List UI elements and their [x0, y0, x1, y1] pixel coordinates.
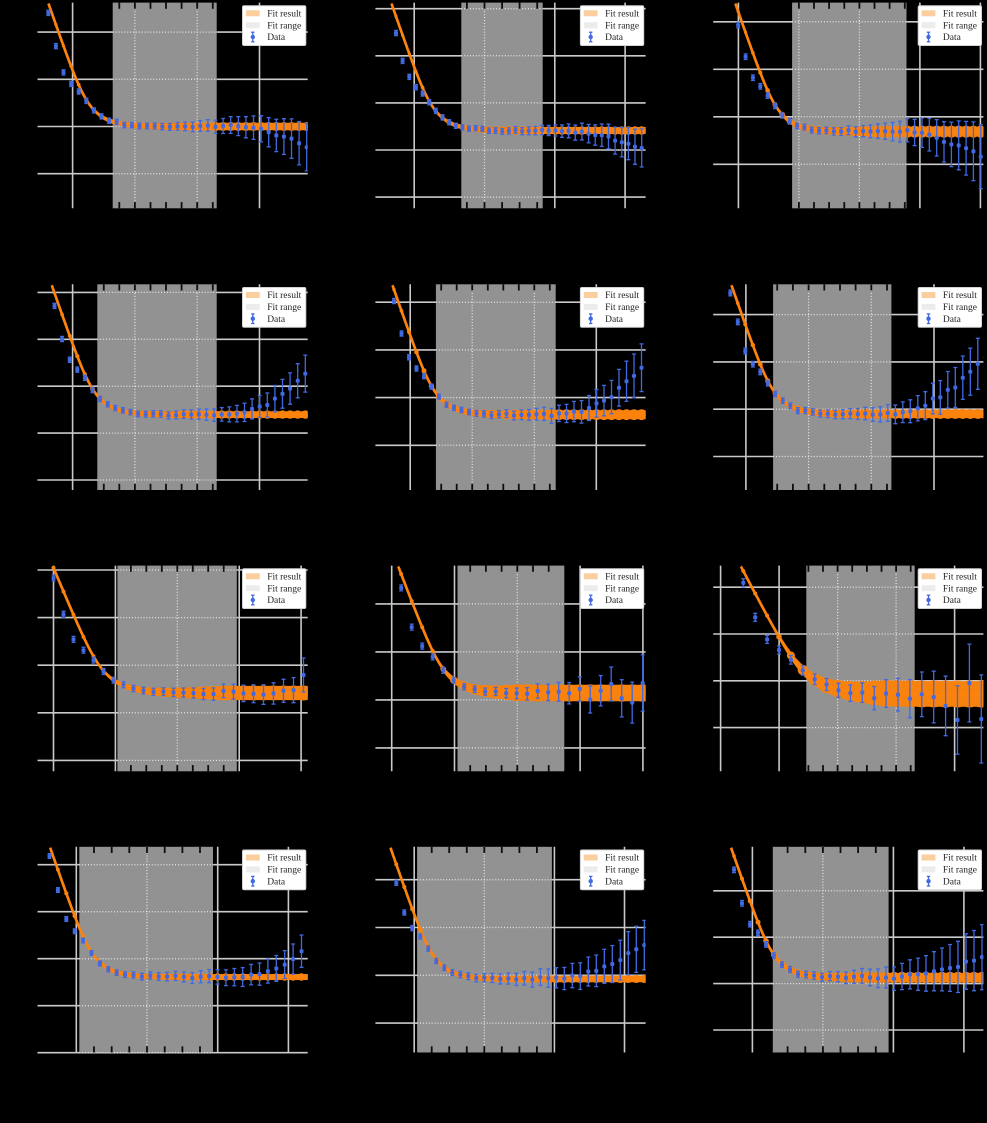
svg-text:Data: Data [267, 877, 286, 887]
svg-text:Fit range: Fit range [267, 584, 301, 594]
svg-text:Fit result: Fit result [605, 573, 639, 583]
svg-text:Data: Data [605, 33, 624, 43]
svg-text:Fit range: Fit range [943, 303, 977, 313]
svg-text:Fit result: Fit result [943, 854, 977, 864]
svg-text:Fit range: Fit range [267, 21, 301, 31]
svg-text:Data: Data [605, 315, 624, 325]
svg-text:Data: Data [943, 877, 962, 887]
svg-text:Fit range: Fit range [605, 866, 639, 876]
svg-text:Data: Data [605, 596, 624, 606]
svg-text:Data: Data [605, 877, 624, 887]
svg-text:Fit range: Fit range [267, 303, 301, 313]
svg-text:Fit range: Fit range [943, 21, 977, 31]
svg-text:Fit result: Fit result [943, 10, 977, 20]
svg-text:Data: Data [943, 315, 962, 325]
svg-text:Fit result: Fit result [943, 291, 977, 301]
svg-text:Data: Data [943, 33, 962, 43]
svg-text:Fit range: Fit range [605, 584, 639, 594]
svg-text:Fit range: Fit range [605, 21, 639, 31]
svg-text:Fit result: Fit result [605, 10, 639, 20]
svg-text:Fit range: Fit range [943, 584, 977, 594]
svg-text:Data: Data [267, 596, 286, 606]
svg-text:Fit result: Fit result [267, 854, 301, 864]
svg-text:Fit result: Fit result [267, 10, 301, 20]
svg-text:Data: Data [267, 33, 286, 43]
svg-text:Fit result: Fit result [605, 291, 639, 301]
svg-text:Data: Data [943, 596, 962, 606]
svg-text:Fit range: Fit range [943, 866, 977, 876]
svg-text:Fit range: Fit range [605, 303, 639, 313]
svg-text:Fit result: Fit result [267, 573, 301, 583]
svg-text:Fit result: Fit result [943, 573, 977, 583]
svg-text:Data: Data [267, 315, 286, 325]
svg-text:Fit range: Fit range [267, 866, 301, 876]
svg-text:Fit result: Fit result [267, 291, 301, 301]
svg-text:Fit result: Fit result [605, 854, 639, 864]
